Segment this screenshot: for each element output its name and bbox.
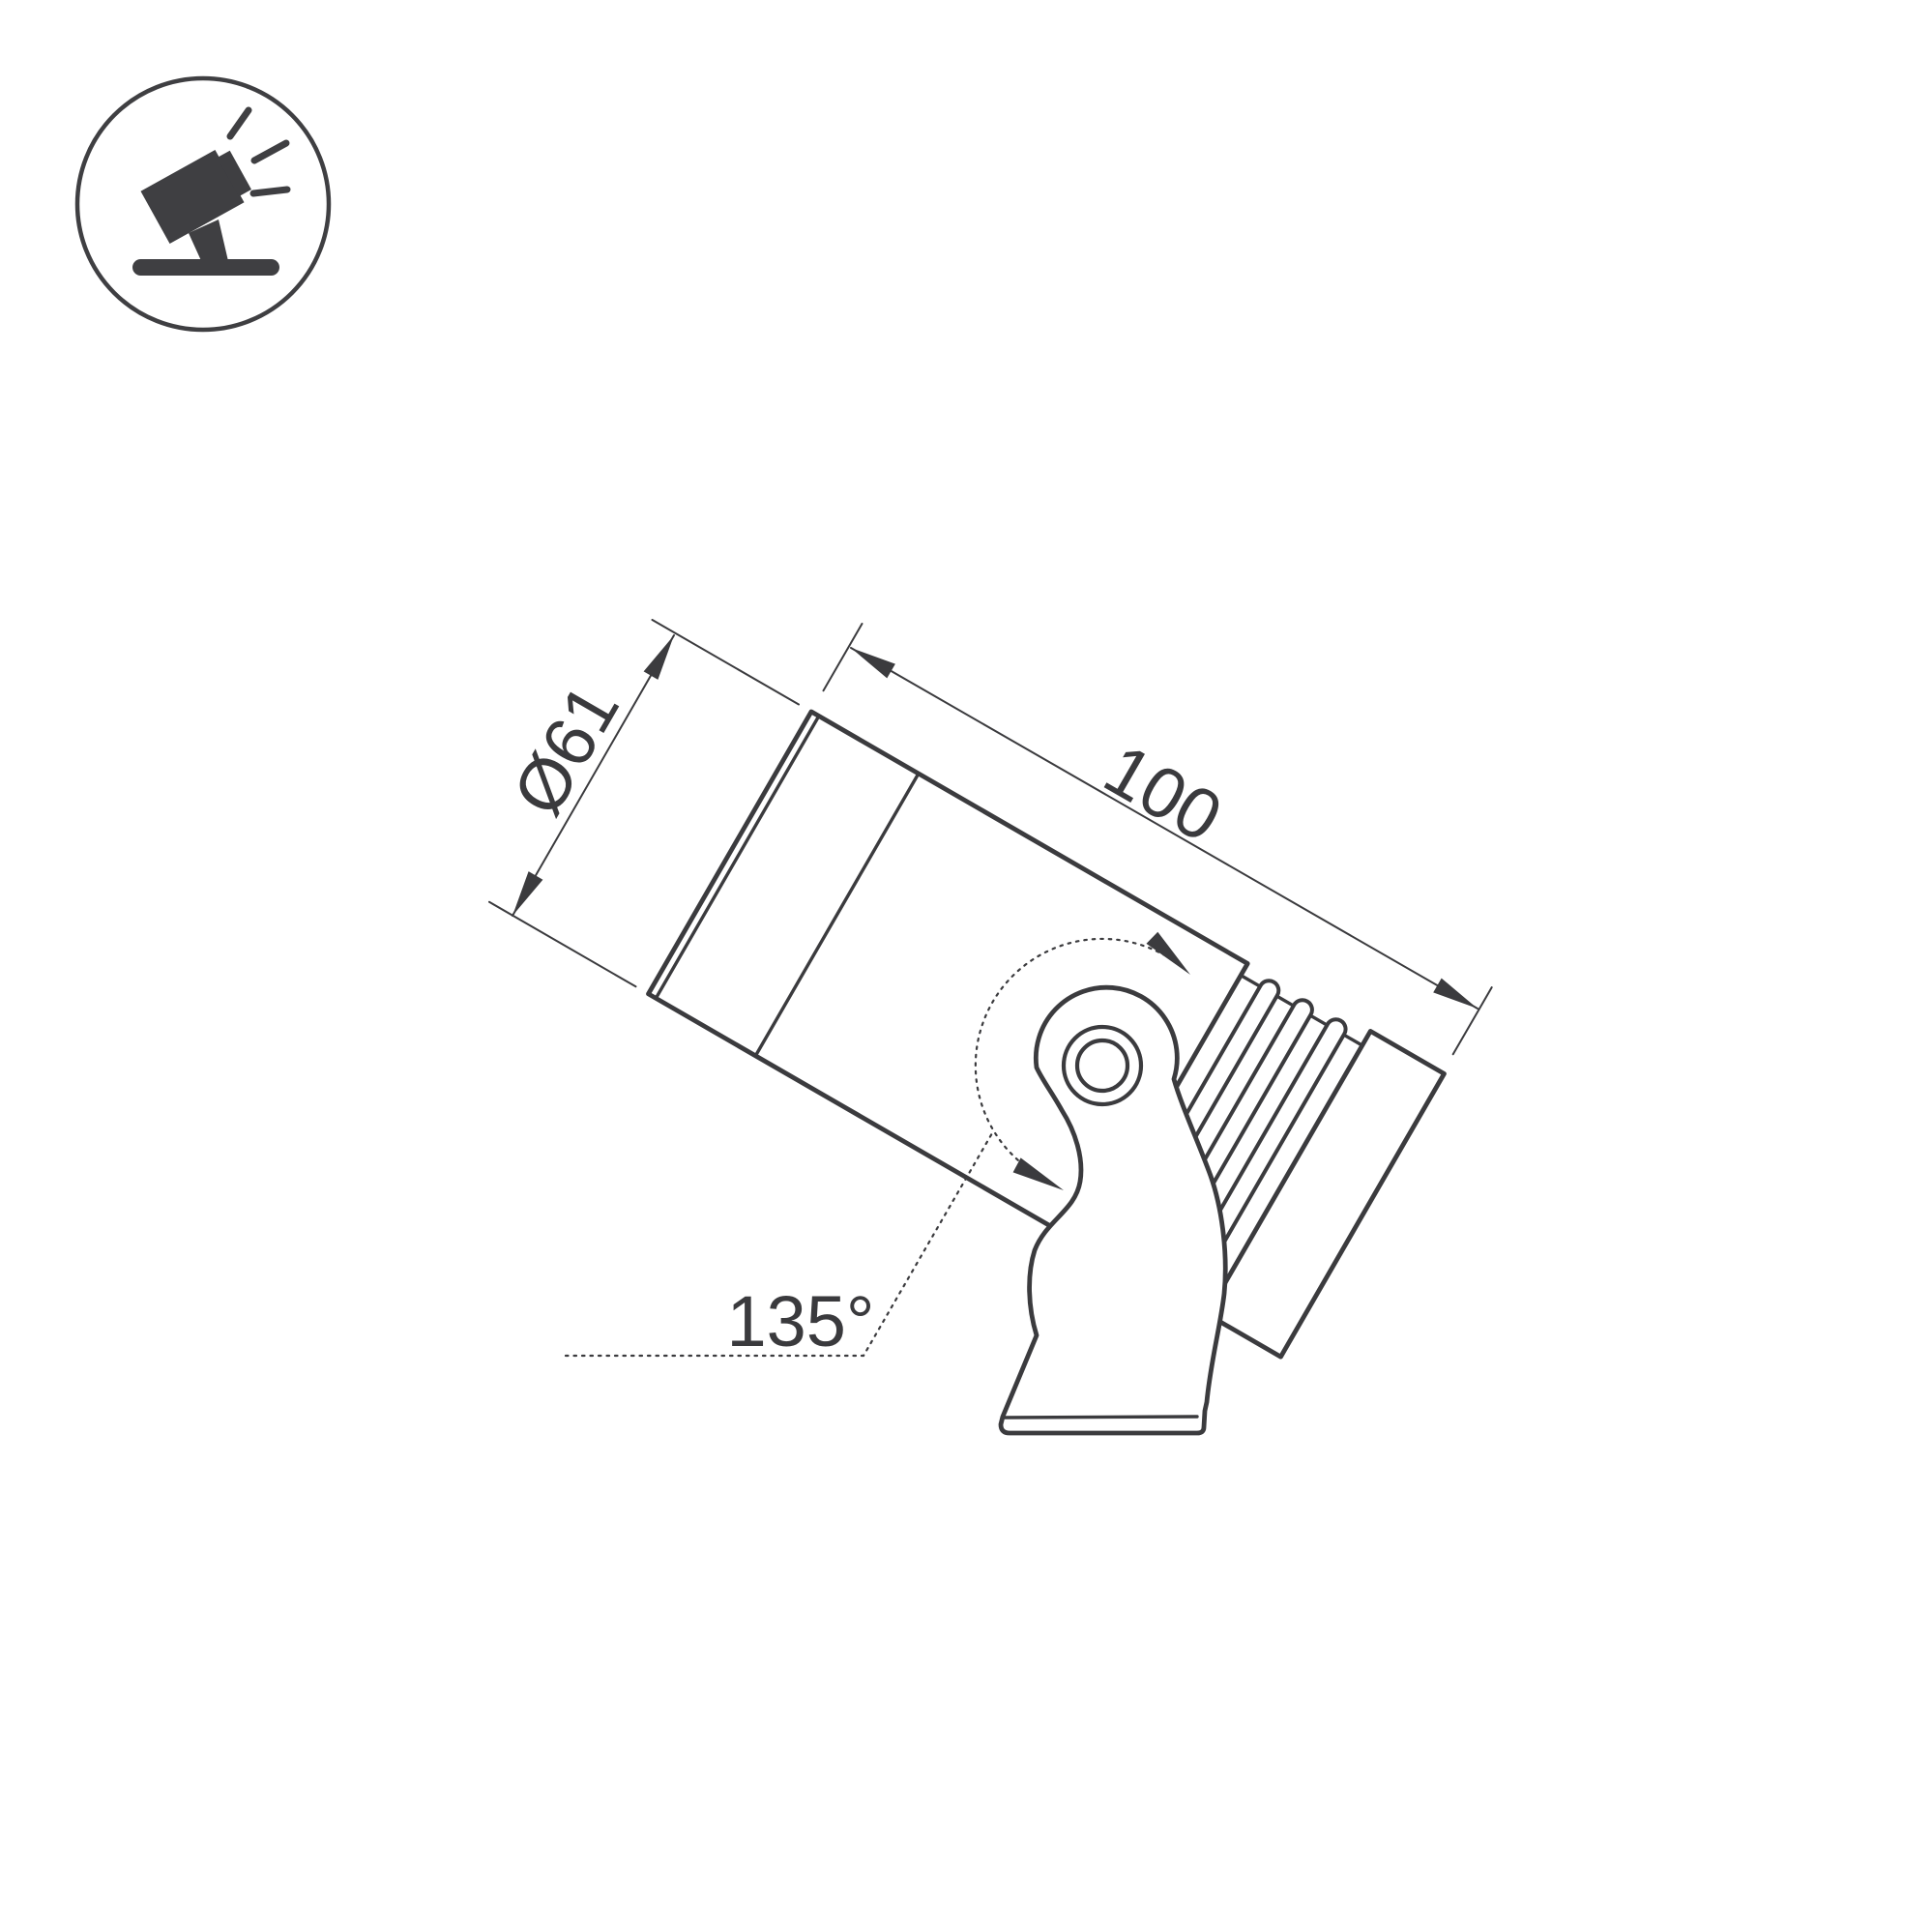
extension-line xyxy=(653,620,800,705)
arrowhead-icon xyxy=(1433,979,1478,1009)
length-dimension-label: 100 xyxy=(1092,728,1235,858)
angle-dimension-label: 135° xyxy=(726,1281,874,1361)
diameter-dimension-label: Ø61 xyxy=(497,671,634,829)
extension-line xyxy=(489,902,636,987)
spotlight-base-icon xyxy=(132,259,279,276)
spotlight-head-icon xyxy=(140,144,254,244)
arrowhead-icon xyxy=(512,871,542,916)
extension-line xyxy=(824,624,863,690)
arrowhead-icon xyxy=(644,635,674,680)
arrowhead-icon xyxy=(851,648,895,678)
base-plate-edge-line xyxy=(1004,1417,1197,1418)
drawing-canvas: Ø61 100 135° xyxy=(0,0,1932,1932)
tilted-spotlight-badge xyxy=(77,78,329,330)
dimension-drawing: Ø61 100 135° xyxy=(0,0,1932,1932)
